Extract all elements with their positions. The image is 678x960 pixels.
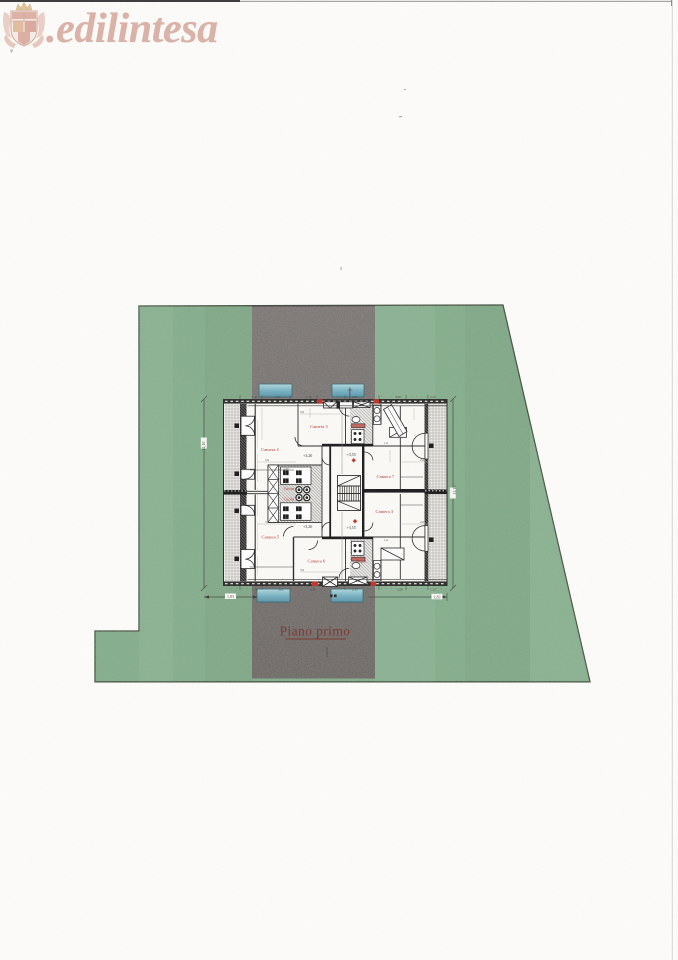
svg-text:Piano primo: Piano primo [280,624,351,639]
